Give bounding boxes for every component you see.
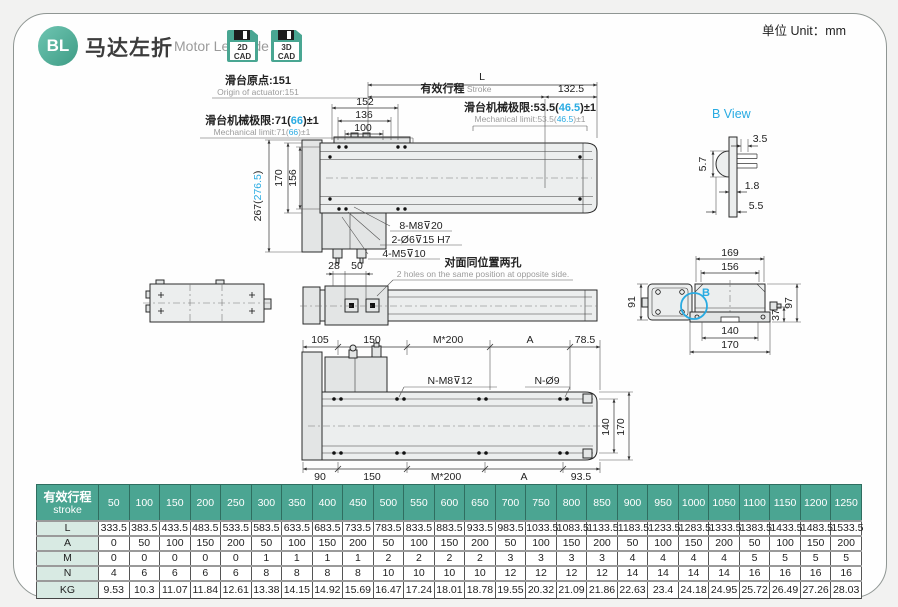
table-cell: 8 bbox=[312, 566, 343, 581]
stroke-header-cell: 有效行程 stroke bbox=[37, 485, 99, 522]
table-cell: 1233.5 bbox=[648, 521, 679, 536]
stroke-column-header: 850 bbox=[587, 485, 618, 522]
dim-140-end: 140 bbox=[721, 325, 739, 337]
table-cell: 883.5 bbox=[434, 521, 465, 536]
table-cell: 200 bbox=[221, 536, 252, 551]
dim-105: 105 bbox=[311, 334, 329, 346]
table-cell: 50 bbox=[617, 536, 648, 551]
table-cell: 933.5 bbox=[465, 521, 496, 536]
dim-3-5: 3.5 bbox=[753, 133, 768, 145]
table-cell: 383.5 bbox=[129, 521, 160, 536]
dim-170-bottom: 170 bbox=[615, 418, 627, 436]
limit-left-cn: 滑台机械极限:71(66)±1 bbox=[205, 113, 319, 127]
table-cell: 6 bbox=[190, 566, 221, 581]
table-cell: 150 bbox=[678, 536, 709, 551]
callout-n-o9: N-Ø9 bbox=[534, 375, 559, 387]
table-cell: 1333.5 bbox=[709, 521, 740, 536]
callout-4-m5: 4-M5⊽10 bbox=[382, 248, 425, 260]
table-cell: 0 bbox=[221, 551, 252, 566]
stroke-column-header: 600 bbox=[434, 485, 465, 522]
table-cell: 333.5 bbox=[99, 521, 130, 536]
origin-label-cn: 滑台原点:151 bbox=[225, 73, 291, 87]
table-cell: 14 bbox=[617, 566, 648, 581]
table-cell: 8 bbox=[343, 566, 374, 581]
stroke-column-header: 250 bbox=[221, 485, 252, 522]
table-cell: 50 bbox=[129, 536, 160, 551]
stroke-column-header: 500 bbox=[373, 485, 404, 522]
table-cell: 1383.5 bbox=[739, 521, 770, 536]
table-cell: 2 bbox=[434, 551, 465, 566]
table-cell: 10 bbox=[404, 566, 435, 581]
dim-50: 50 bbox=[351, 260, 363, 272]
table-cell: 0 bbox=[160, 551, 191, 566]
table-cell: 14 bbox=[709, 566, 740, 581]
dim-93-5: 93.5 bbox=[571, 471, 592, 483]
stroke-column-header: 200 bbox=[190, 485, 221, 522]
top-view: L 有效行程 Stroke 132.5 滑台原点:151 Origin of a… bbox=[200, 71, 597, 263]
table-cell: 1 bbox=[251, 551, 282, 566]
callout-2-o6: 2-Ø6⊽15 H7 bbox=[391, 234, 450, 246]
table-cell: 19.55 bbox=[495, 581, 526, 599]
callout-n-m8: N-M8⊽12 bbox=[427, 375, 472, 387]
stroke-column-header: 150 bbox=[160, 485, 191, 522]
dim-170: 170 bbox=[273, 169, 285, 187]
table-cell: 2 bbox=[373, 551, 404, 566]
stroke-column-header: 1100 bbox=[739, 485, 770, 522]
table-cell: 100 bbox=[160, 536, 191, 551]
table-cell: 1033.5 bbox=[526, 521, 557, 536]
table-cell: 50 bbox=[495, 536, 526, 551]
table-cell: 21.86 bbox=[587, 581, 618, 599]
table-cell: 6 bbox=[129, 566, 160, 581]
dim-5-5: 5.5 bbox=[749, 200, 764, 212]
table-cell: 2 bbox=[404, 551, 435, 566]
dim-m200-top: M*200 bbox=[433, 334, 464, 346]
table-cell: 583.5 bbox=[251, 521, 282, 536]
dim-a-top: A bbox=[526, 334, 533, 346]
table-cell: 27.26 bbox=[800, 581, 831, 599]
table-cell: 13.38 bbox=[251, 581, 282, 599]
table-cell: 16 bbox=[770, 566, 801, 581]
table-cell: 26.49 bbox=[770, 581, 801, 599]
stroke-column-header: 100 bbox=[129, 485, 160, 522]
table-cell: 1 bbox=[343, 551, 374, 566]
table-cell: 20.32 bbox=[526, 581, 557, 599]
table-cell: 1133.5 bbox=[587, 521, 618, 536]
stroke-column-header: 1150 bbox=[770, 485, 801, 522]
table-cell: 4 bbox=[617, 551, 648, 566]
table-cell: 1483.5 bbox=[800, 521, 831, 536]
table-cell: 4 bbox=[99, 566, 130, 581]
table-row: N466668888101010101212121214141414161616… bbox=[37, 566, 862, 581]
b-view-title: B View bbox=[712, 107, 752, 121]
table-cell: 18.78 bbox=[465, 581, 496, 599]
dim-132-5: 132.5 bbox=[558, 83, 584, 95]
dim-91: 91 bbox=[626, 296, 638, 308]
stroke-column-header: 400 bbox=[312, 485, 343, 522]
table-cell: 5 bbox=[800, 551, 831, 566]
dim-140-bottom: 140 bbox=[600, 418, 612, 436]
table-cell: 10.3 bbox=[129, 581, 160, 599]
table-cell: 5 bbox=[831, 551, 862, 566]
row-label: N bbox=[37, 566, 99, 581]
table-cell: 12 bbox=[556, 566, 587, 581]
table-cell: 150 bbox=[800, 536, 831, 551]
table-cell: 10 bbox=[434, 566, 465, 581]
dim-100: 100 bbox=[354, 122, 372, 134]
table-cell: 1533.5 bbox=[831, 521, 862, 536]
table-cell: 783.5 bbox=[373, 521, 404, 536]
table-cell: 200 bbox=[709, 536, 740, 551]
table-cell: 14 bbox=[678, 566, 709, 581]
table-cell: 533.5 bbox=[221, 521, 252, 536]
table-cell: 200 bbox=[587, 536, 618, 551]
table-cell: 12 bbox=[495, 566, 526, 581]
dim-156-end: 156 bbox=[721, 261, 739, 273]
b-detail-label: B bbox=[702, 287, 710, 299]
table-cell: 100 bbox=[526, 536, 557, 551]
table-cell: 0 bbox=[190, 551, 221, 566]
stroke-column-header: 300 bbox=[251, 485, 282, 522]
table-cell: 3 bbox=[556, 551, 587, 566]
stroke-column-header: 1000 bbox=[678, 485, 709, 522]
table-cell: 12 bbox=[587, 566, 618, 581]
end-view: B 169 156 91 97 37 140 170 bbox=[626, 247, 801, 355]
dim-169: 169 bbox=[721, 247, 739, 259]
table-cell: 14.15 bbox=[282, 581, 313, 599]
table-cell: 10 bbox=[373, 566, 404, 581]
table-cell: 3 bbox=[587, 551, 618, 566]
table-cell: 6 bbox=[160, 566, 191, 581]
table-cell: 12.61 bbox=[221, 581, 252, 599]
table-cell: 17.24 bbox=[404, 581, 435, 599]
table-cell: 1 bbox=[312, 551, 343, 566]
table-cell: 1183.5 bbox=[617, 521, 648, 536]
row-label: A bbox=[37, 536, 99, 551]
table-cell: 50 bbox=[251, 536, 282, 551]
table-cell: 28.03 bbox=[831, 581, 862, 599]
table-cell: 16 bbox=[800, 566, 831, 581]
stroke-column-header: 900 bbox=[617, 485, 648, 522]
dim-136: 136 bbox=[355, 109, 373, 121]
dim-m200-bot: M*200 bbox=[431, 471, 462, 483]
table-cell: 14.92 bbox=[312, 581, 343, 599]
table-cell: 683.5 bbox=[312, 521, 343, 536]
row-label: L bbox=[37, 521, 99, 536]
table-cell: 50 bbox=[373, 536, 404, 551]
table-cell: 8 bbox=[251, 566, 282, 581]
table-cell: 2 bbox=[465, 551, 496, 566]
dim-37: 37 bbox=[770, 309, 782, 321]
technical-drawing: L 有效行程 Stroke 132.5 滑台原点:151 Origin of a… bbox=[0, 0, 898, 484]
dim-170-end: 170 bbox=[721, 339, 739, 351]
table-row: M0000011112222333344445555 bbox=[37, 551, 862, 566]
stroke-column-header: 1200 bbox=[800, 485, 831, 522]
table-cell: 23.4 bbox=[648, 581, 679, 599]
rear-view bbox=[143, 280, 272, 322]
stroke-column-header: 1250 bbox=[831, 485, 862, 522]
table-cell: 10 bbox=[465, 566, 496, 581]
table-cell: 16 bbox=[739, 566, 770, 581]
table-cell: 200 bbox=[831, 536, 862, 551]
table-row: KG9.5310.311.0711.8412.6113.3814.1514.92… bbox=[37, 581, 862, 599]
stroke-column-header: 750 bbox=[526, 485, 557, 522]
table-cell: 21.09 bbox=[556, 581, 587, 599]
dim-28: 28 bbox=[328, 260, 340, 272]
table-cell: 150 bbox=[312, 536, 343, 551]
stroke-column-header: 950 bbox=[648, 485, 679, 522]
bottom-view: 105 150 M*200 A 78.5 N-M8⊽12 N-Ø9 bbox=[302, 334, 633, 483]
stroke-column-header: 550 bbox=[404, 485, 435, 522]
catalog-page: { "unit_label": "单位 Unit：mm", "header": … bbox=[0, 0, 898, 607]
table-cell: 1083.5 bbox=[556, 521, 587, 536]
table-cell: 24.18 bbox=[678, 581, 709, 599]
table-cell: 18.01 bbox=[434, 581, 465, 599]
table-cell: 483.5 bbox=[190, 521, 221, 536]
table-cell: 8 bbox=[282, 566, 313, 581]
table-cell: 200 bbox=[465, 536, 496, 551]
table-cell: 4 bbox=[709, 551, 740, 566]
table-cell: 14 bbox=[648, 566, 679, 581]
dim-156: 156 bbox=[287, 169, 299, 187]
dim-5-7: 5.7 bbox=[697, 157, 709, 172]
table-cell: 24.95 bbox=[709, 581, 740, 599]
origin-label-en: Origin of actuator:151 bbox=[217, 87, 299, 97]
stroke-spec-table: 有效行程 stroke 5010015020025030035040045050… bbox=[36, 484, 862, 599]
table-cell: 50 bbox=[739, 536, 770, 551]
table-cell: 15.69 bbox=[343, 581, 374, 599]
table-cell: 0 bbox=[99, 551, 130, 566]
table-cell: 150 bbox=[434, 536, 465, 551]
table-cell: 0 bbox=[129, 551, 160, 566]
table-cell: 1433.5 bbox=[770, 521, 801, 536]
table-cell: 633.5 bbox=[282, 521, 313, 536]
row-label: KG bbox=[37, 581, 99, 599]
table-cell: 833.5 bbox=[404, 521, 435, 536]
table-cell: 11.84 bbox=[190, 581, 221, 599]
limit-right-cn: 滑台机械极限:53.5(46.5)±1 bbox=[464, 100, 596, 114]
dim-78-5: 78.5 bbox=[575, 334, 596, 346]
table-cell: 733.5 bbox=[343, 521, 374, 536]
row-label: M bbox=[37, 551, 99, 566]
dim-stroke: 有效行程 Stroke bbox=[421, 81, 492, 95]
stroke-column-header: 650 bbox=[465, 485, 496, 522]
table-cell: 0 bbox=[99, 536, 130, 551]
b-view-detail: B View 3.5 5.7 1.8 5.5 bbox=[697, 107, 767, 217]
table-cell: 16.47 bbox=[373, 581, 404, 599]
side-view: 28 50 对面同位置两孔 2 holes on the same positi… bbox=[300, 255, 600, 325]
table-cell: 1283.5 bbox=[678, 521, 709, 536]
table-cell: 4 bbox=[648, 551, 679, 566]
table-cell: 150 bbox=[190, 536, 221, 551]
dim-152: 152 bbox=[356, 96, 374, 108]
table-cell: 3 bbox=[495, 551, 526, 566]
table-cell: 983.5 bbox=[495, 521, 526, 536]
dim-a-bot: A bbox=[520, 471, 527, 483]
table-cell: 433.5 bbox=[160, 521, 191, 536]
limit-right-en: Mechanical limit:53.5(46.5)±1 bbox=[475, 114, 586, 124]
stroke-column-header: 350 bbox=[282, 485, 313, 522]
table-row: L333.5383.5433.5483.5533.5583.5633.5683.… bbox=[37, 521, 862, 536]
stroke-column-header: 700 bbox=[495, 485, 526, 522]
table-cell: 100 bbox=[648, 536, 679, 551]
dim-150-bot: 150 bbox=[363, 471, 381, 483]
stroke-column-header: 800 bbox=[556, 485, 587, 522]
note-en: 2 holes on the same position at opposite… bbox=[397, 269, 569, 279]
limit-left-en: Mechanical limit:71(66)±1 bbox=[214, 127, 311, 137]
table-row: A050100150200501001502005010015020050100… bbox=[37, 536, 862, 551]
dim-267: 267(276.5) bbox=[252, 171, 264, 222]
note-cn: 对面同位置两孔 bbox=[445, 255, 522, 269]
stroke-column-header: 1050 bbox=[709, 485, 740, 522]
table-cell: 25.72 bbox=[739, 581, 770, 599]
table-cell: 12 bbox=[526, 566, 557, 581]
table-cell: 4 bbox=[678, 551, 709, 566]
dim-1-8: 1.8 bbox=[745, 180, 760, 192]
dim-L: L bbox=[479, 71, 485, 83]
table-cell: 3 bbox=[526, 551, 557, 566]
callout-8-m8: 8-M8⊽20 bbox=[399, 220, 442, 232]
table-cell: 6 bbox=[221, 566, 252, 581]
table-cell: 22.63 bbox=[617, 581, 648, 599]
stroke-column-header: 50 bbox=[99, 485, 130, 522]
table-cell: 100 bbox=[770, 536, 801, 551]
table-cell: 200 bbox=[343, 536, 374, 551]
table-cell: 100 bbox=[404, 536, 435, 551]
table-cell: 5 bbox=[739, 551, 770, 566]
table-cell: 16 bbox=[831, 566, 862, 581]
table-cell: 9.53 bbox=[99, 581, 130, 599]
table-cell: 5 bbox=[770, 551, 801, 566]
table-cell: 100 bbox=[282, 536, 313, 551]
table-cell: 1 bbox=[282, 551, 313, 566]
dim-90: 90 bbox=[314, 471, 326, 483]
table-cell: 150 bbox=[556, 536, 587, 551]
stroke-column-header: 450 bbox=[343, 485, 374, 522]
table-cell: 11.07 bbox=[160, 581, 191, 599]
